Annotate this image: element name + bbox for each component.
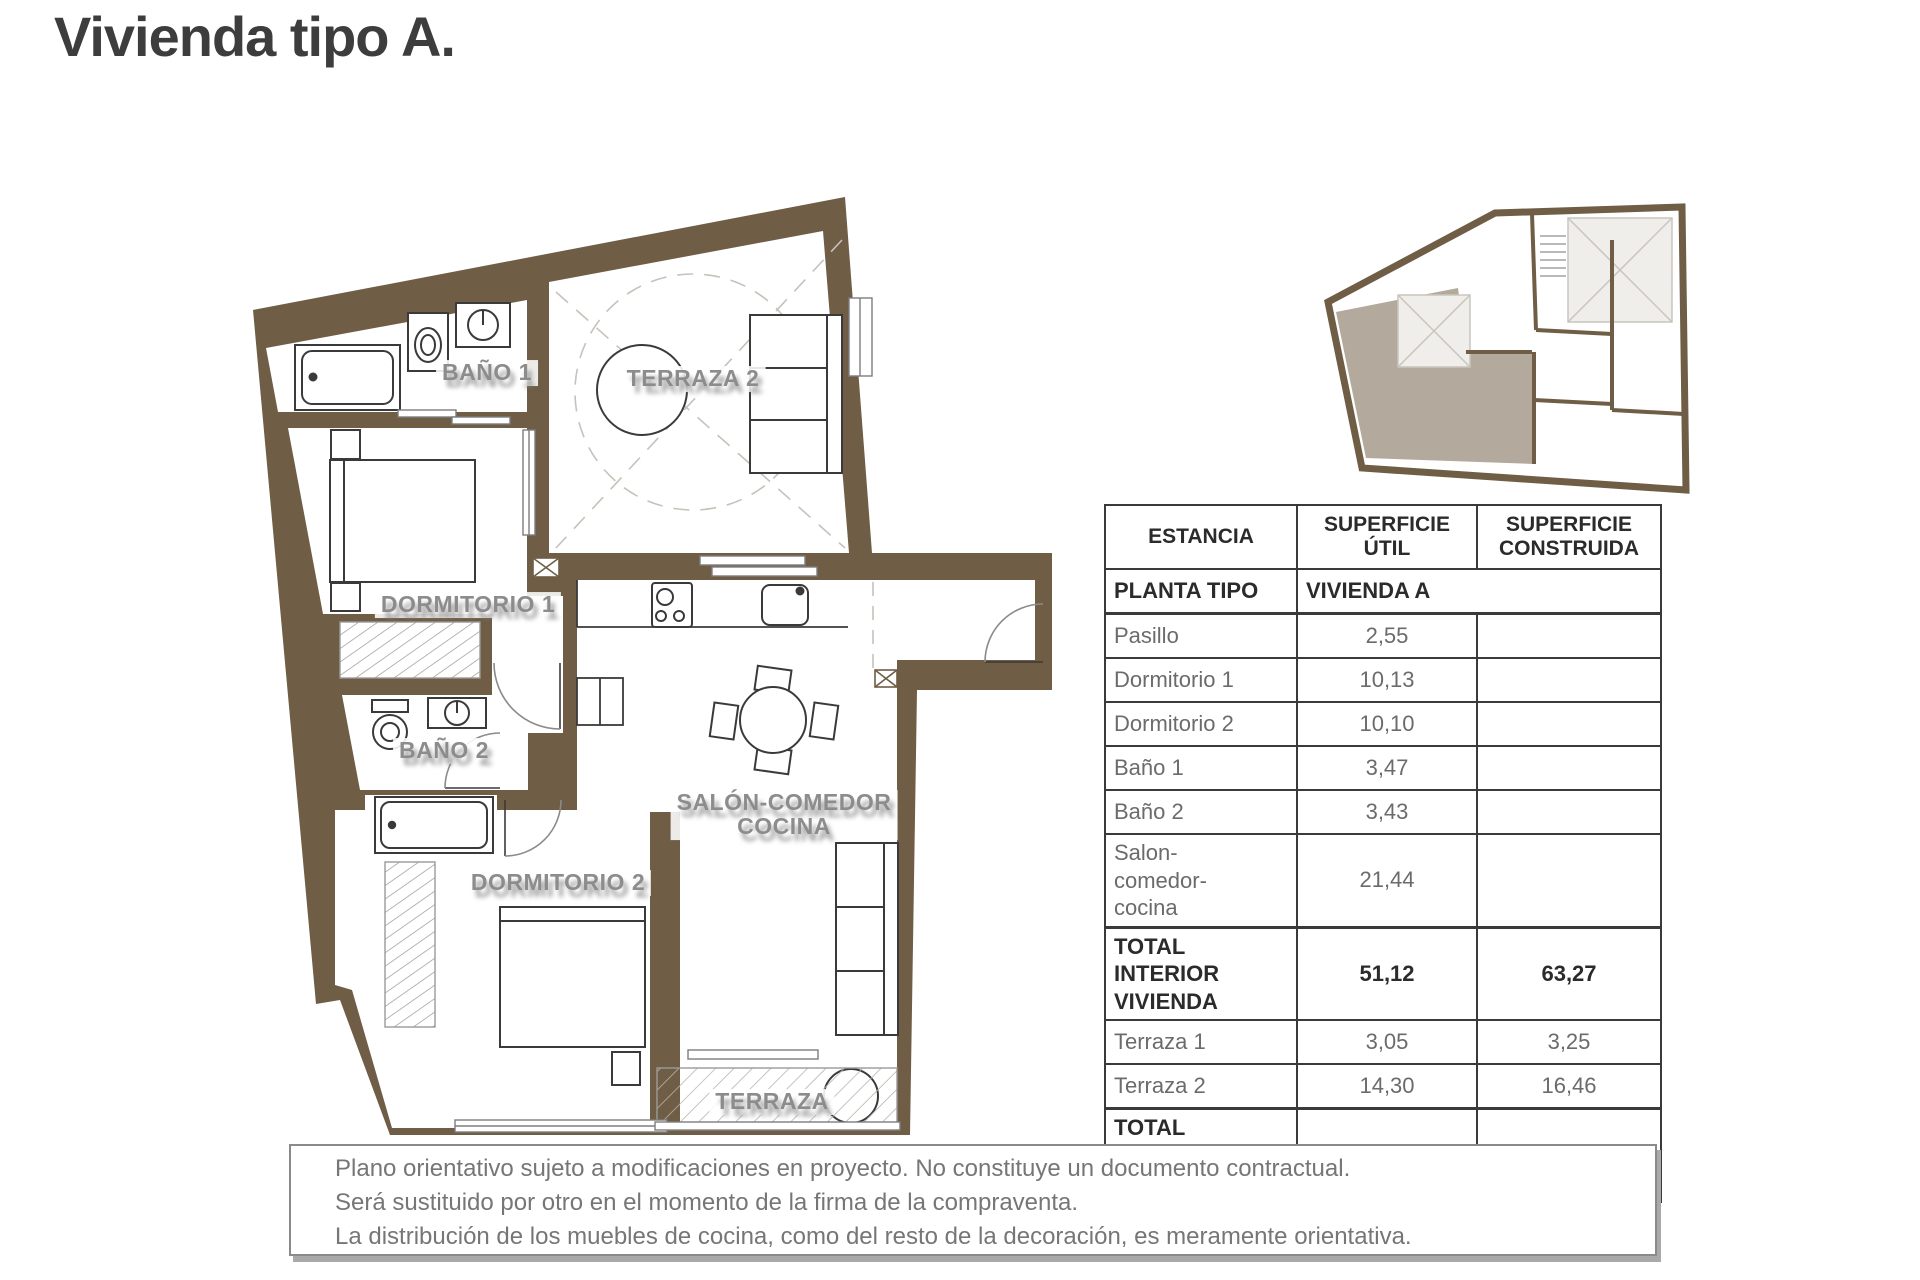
areas-table-row: Baño 13,47 (1105, 746, 1661, 790)
cell-value (1477, 746, 1661, 790)
cell-estancia: Dormitorio 1 (1105, 658, 1297, 702)
banyo1-washer-icon (456, 303, 510, 347)
cell-value: 14,30 (1297, 1064, 1477, 1109)
building-overview-miniplan (1328, 207, 1686, 490)
cell-value: 10,10 (1297, 702, 1477, 746)
header-estancia: ESTANCIA (1105, 505, 1297, 569)
cell-value (1477, 790, 1661, 834)
areas-table-row: Pasillo2,55 (1105, 614, 1661, 659)
room-label-terraza: TERRAZA (709, 1089, 834, 1115)
cell-value: 21,44 (1297, 834, 1477, 927)
room-label-bano2: BAÑO 2 (393, 738, 495, 764)
cell-value: 63,27 (1477, 927, 1661, 1020)
wardrobe1-icon (340, 622, 480, 678)
cell-value: 3,43 (1297, 790, 1477, 834)
areas-table-row: Baño 23,43 (1105, 790, 1661, 834)
cell-estancia: Baño 1 (1105, 746, 1297, 790)
cell-value: 3,05 (1297, 1020, 1477, 1064)
cell-value: 16,46 (1477, 1064, 1661, 1109)
sink-icon (762, 585, 808, 625)
bathtub1-icon (295, 345, 400, 410)
planta-tipo-label: PLANTA TIPO (1105, 569, 1297, 614)
page-title: Vivienda tipo A. (54, 4, 455, 69)
room-label-salon-comedor-cocina: SALÓN-COMEDOR COCINA (671, 790, 898, 840)
cell-value (1477, 658, 1661, 702)
cell-estancia: Salon- comedor- cocina (1105, 834, 1297, 927)
banyo2-washer-icon (428, 698, 486, 728)
cell-value (1477, 614, 1661, 659)
areas-table-row: Terraza 214,3016,46 (1105, 1064, 1661, 1109)
areas-table: ESTANCIA SUPERFICIE ÚTIL SUPERFICIE CONS… (1104, 504, 1662, 1203)
areas-table-row: Dormitorio 110,13 (1105, 658, 1661, 702)
planta-tipo-value: VIVIENDA A (1297, 569, 1661, 614)
cell-value: 3,25 (1477, 1020, 1661, 1064)
disclaimer-box: Plano orientativo sujeto a modificacione… (289, 1144, 1657, 1256)
planta-tipo-row: PLANTA TIPO VIVIENDA A (1105, 569, 1661, 614)
terraza2-sofa-icon (750, 315, 842, 473)
cell-estancia: Dormitorio 2 (1105, 702, 1297, 746)
disclaimer-line-3: La distribución de los muebles de cocina… (335, 1220, 1655, 1254)
salon-label-line1: SALÓN-COMEDOR (677, 791, 892, 815)
room-label-dormitorio2: DORMITORIO 2 (465, 870, 651, 896)
cell-value: 2,55 (1297, 614, 1477, 659)
cell-estancia: TOTAL INTERIOR VIVIENDA (1105, 927, 1297, 1020)
page: { "title": "Vivienda tipo A.", "floor_pl… (0, 0, 1920, 1280)
areas-table-header-row: ESTANCIA SUPERFICIE ÚTIL SUPERFICIE CONS… (1105, 505, 1661, 569)
room-label-terraza2: TERRAZA 2 (621, 366, 766, 392)
cell-estancia: Pasillo (1105, 614, 1297, 659)
areas-table-row: Salon- comedor- cocina21,44 (1105, 834, 1661, 927)
areas-table-row: Dormitorio 210,10 (1105, 702, 1661, 746)
header-util: SUPERFICIE ÚTIL (1297, 505, 1477, 569)
header-construida: SUPERFICIE CONSTRUIDA (1477, 505, 1661, 569)
salon-label-line2: COCINA (677, 815, 892, 839)
cell-value (1477, 834, 1661, 927)
areas-table-row: Terraza 13,053,25 (1105, 1020, 1661, 1064)
cell-estancia: Baño 2 (1105, 790, 1297, 834)
wardrobe2-icon (385, 862, 435, 1027)
disclaimer-line-1: Plano orientativo sujeto a modificacione… (335, 1152, 1655, 1186)
cell-estancia: Terraza 1 (1105, 1020, 1297, 1064)
salon-sofa-icon (836, 843, 898, 1035)
areas-table-row: TOTAL INTERIOR VIVIENDA51,1263,27 (1105, 927, 1661, 1020)
cell-estancia: Terraza 2 (1105, 1064, 1297, 1109)
room-label-dormitorio1: DORMITORIO 1 (375, 592, 561, 618)
cell-value: 10,13 (1297, 658, 1477, 702)
cell-value (1477, 702, 1661, 746)
cell-value: 3,47 (1297, 746, 1477, 790)
bathtub2-icon (375, 797, 493, 853)
disclaimer-line-2: Será sustituido por otro en el momento d… (335, 1186, 1655, 1220)
room-label-bano1: BAÑO 1 (436, 360, 538, 386)
stove-icon (652, 583, 692, 627)
cell-value: 51,12 (1297, 927, 1477, 1020)
